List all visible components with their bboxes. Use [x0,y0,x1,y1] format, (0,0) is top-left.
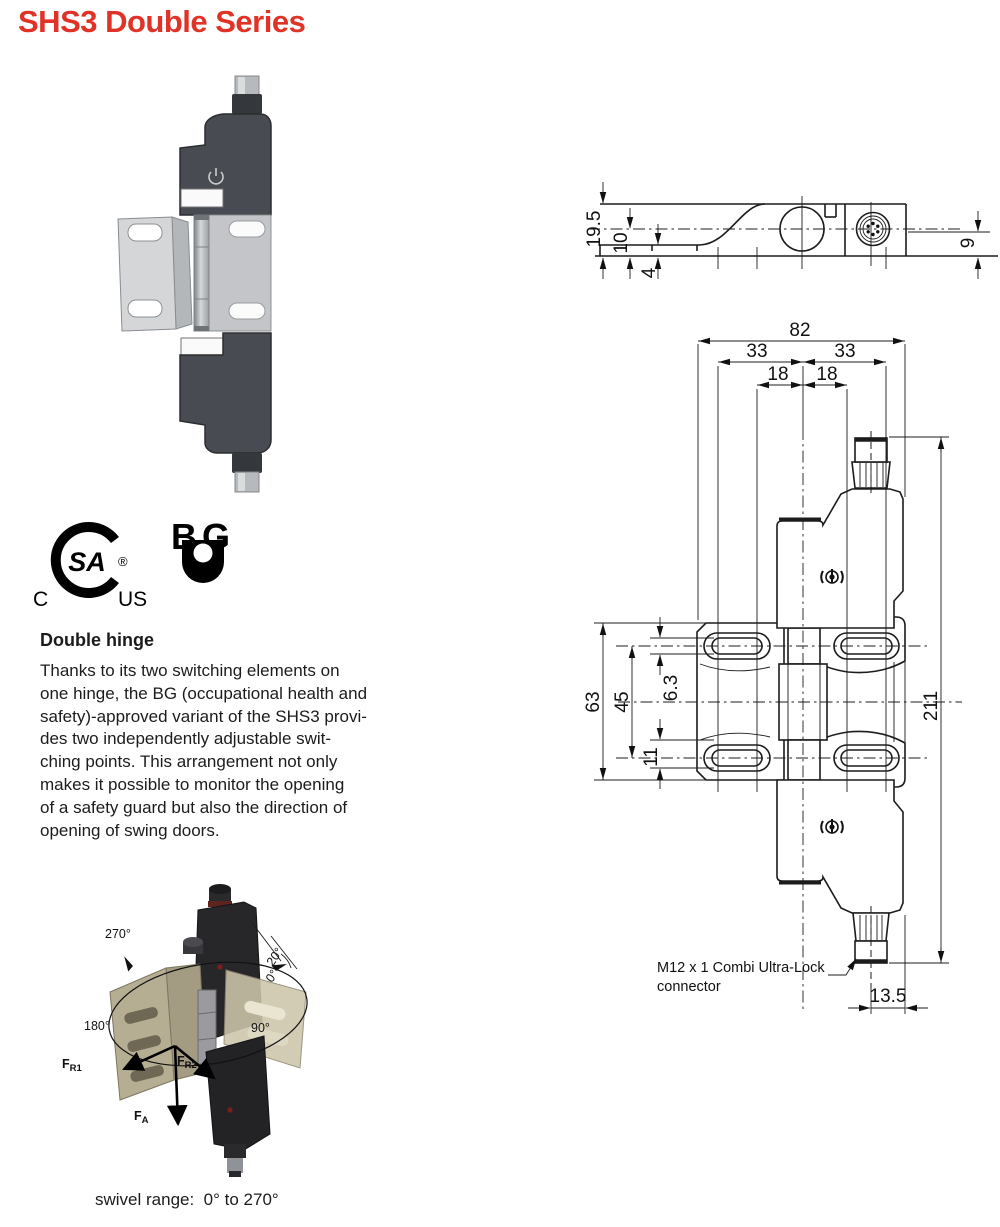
connector-note-line1: M12 x 1 Combi Ultra-Lock [657,960,825,976]
dim-211: 211 [921,691,942,721]
dim-6-3: 6.3 [661,675,682,701]
front-view-drawing: 82 33 33 18 18 63 45 6.3 11 211 13.5 M12… [583,320,962,1014]
hinge-photo-bottom-connector [232,453,262,492]
lower-m12-connector [853,906,889,988]
dim-10: 10 [611,232,632,253]
swivel-range-illustration: 270° 180° 90° 20° 0° FR1 FR2 FA [48,872,353,1177]
datasheet-page: SHS3 Double Series [0,0,1000,1227]
top-view-drawing: 19.5 10 4 9 [584,182,998,279]
bg-logo: B G [170,516,236,596]
page-title: SHS3 Double Series [18,4,305,40]
left-hinge-plate [697,623,784,780]
csa-c-label: C [33,588,48,611]
swivel-range-note: swivel range: 0° to 270° [95,1190,279,1210]
angle-90-label: 90° [251,1021,270,1035]
dim-11: 11 [641,747,662,767]
dim-45: 45 [612,691,633,712]
product-photo [110,72,350,497]
angle-180-label: 180° [84,1019,110,1033]
hinge-photo-pivot-barrel [194,215,209,331]
lower-switch-window [181,338,223,355]
hinge-photo-back-plate [205,215,271,331]
dim-18-right: 18 [816,364,837,385]
csa-us-label: US [118,588,147,611]
csa-monogram: SA [68,547,106,577]
dim-19-5: 19.5 [584,211,605,248]
dim-63: 63 [583,691,604,712]
dim-13-5: 13.5 [870,986,907,1007]
iso-hinge-body [110,884,306,1177]
csa-registered-mark: ® [118,554,128,569]
force-fr1-label: FR1 [62,1057,83,1074]
dim-33-left: 33 [746,341,767,362]
force-fa-label: FA [134,1109,149,1126]
hinge-photo-bracket [118,217,192,331]
bg-circle-cutout [194,544,213,563]
csa-logo: SA ® C US [30,518,165,616]
hinge-photo-top-connector [232,76,262,114]
upper-m12-connector [852,431,890,496]
connector-note-leader [828,959,856,975]
dim-18-left: 18 [767,364,788,385]
angle-270-label: 270° [105,927,131,941]
dim-9: 9 [958,238,979,249]
dim-33-right: 33 [834,341,855,362]
technical-drawing: 19.5 10 4 9 [550,150,1000,1030]
lower-switch-body [777,780,903,988]
dim-82: 82 [789,320,810,341]
section-heading: Double hinge [40,630,154,651]
connector-note-line2: connector [657,979,721,995]
upper-switch-body [777,431,903,628]
dim-4: 4 [639,267,660,278]
upper-switch-window [181,189,223,207]
description-text: Thanks to its two switching elements on … [40,660,410,842]
